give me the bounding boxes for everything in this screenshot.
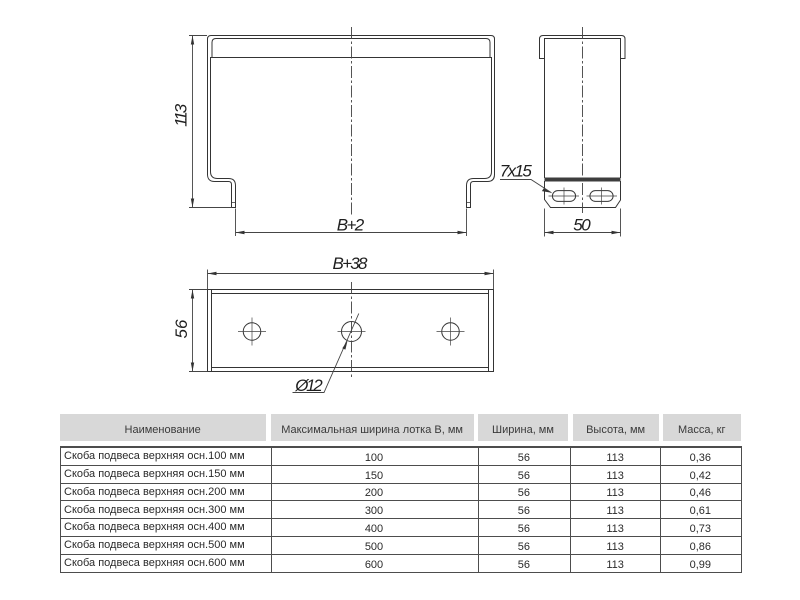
svg-text:Ø12: Ø12 xyxy=(294,376,323,395)
svg-text:56: 56 xyxy=(172,319,191,339)
svg-text:50: 50 xyxy=(573,216,591,235)
svg-text:113: 113 xyxy=(172,103,191,127)
svg-text:B+38: B+38 xyxy=(333,254,369,273)
svg-text:B+2: B+2 xyxy=(337,216,365,235)
svg-text:7x15: 7x15 xyxy=(500,161,533,180)
